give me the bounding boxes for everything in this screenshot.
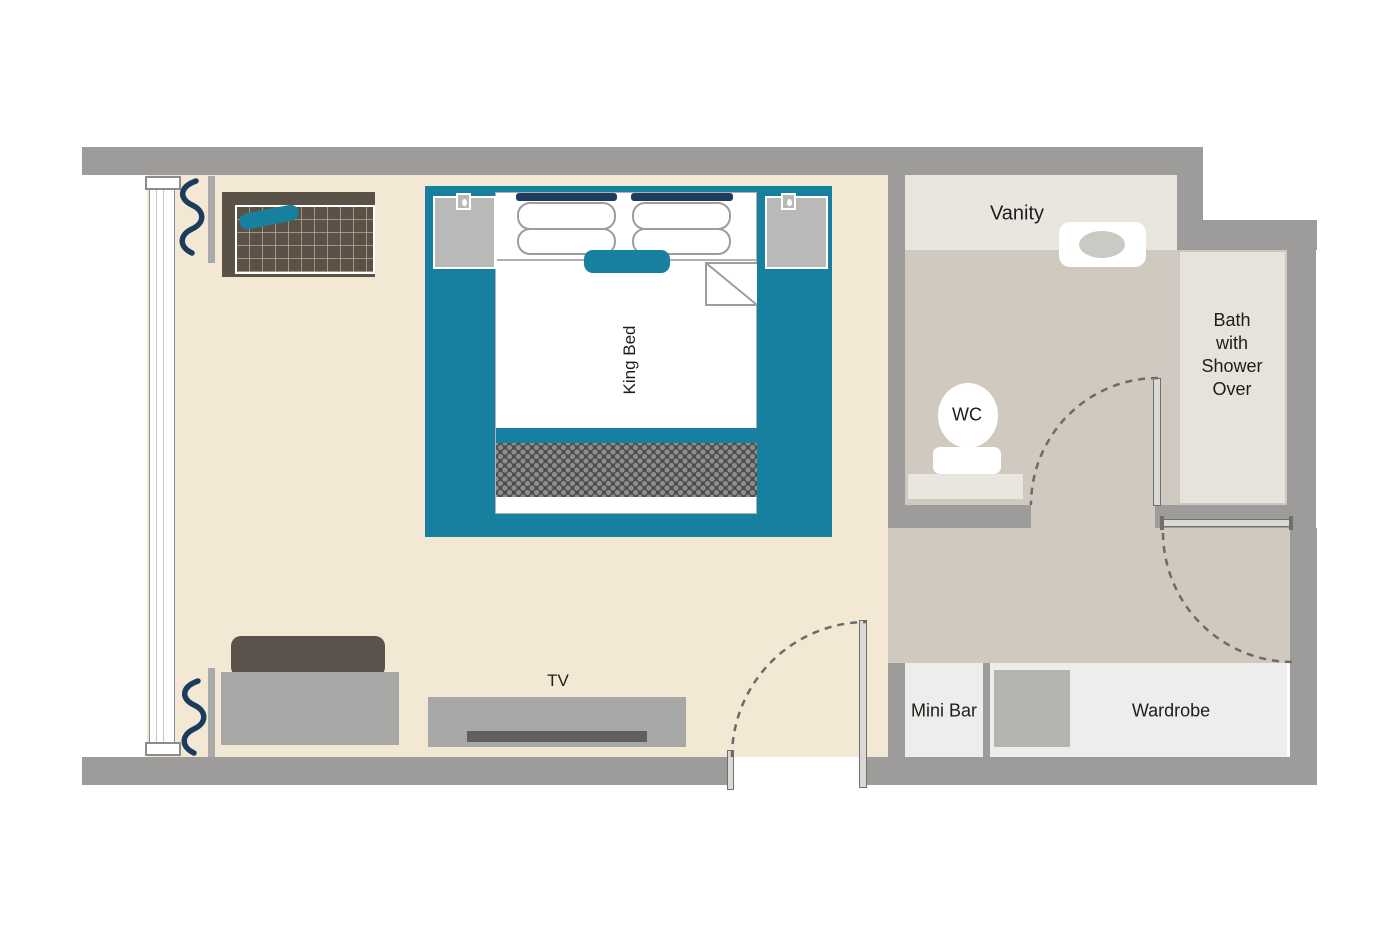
- hall-left-wall-strip: [888, 663, 905, 757]
- window-cap-bottom: [145, 742, 181, 756]
- headboard-cushion-right: [631, 193, 733, 201]
- hall-door-leaf: [1163, 519, 1293, 527]
- top-wall: [82, 147, 1203, 175]
- bath-label: Bath with Shower Over: [1201, 309, 1262, 401]
- sofa-seat: [221, 672, 399, 745]
- vanity-sink: [1059, 222, 1146, 267]
- lamp-icon: [781, 193, 796, 210]
- curtain-track-bottom: [208, 668, 215, 757]
- vanity-right-wall: [1177, 170, 1203, 225]
- mini-bar-label: Mini Bar: [911, 701, 977, 722]
- wc-shelf: [908, 474, 1023, 499]
- right-wall-upper: [1287, 248, 1316, 528]
- bed-runner-dotted: [496, 443, 757, 497]
- wc-bottom-wall: [888, 505, 1031, 528]
- wardrobe-label: Wardrobe: [1132, 701, 1210, 722]
- bottom-wall: [82, 757, 1317, 785]
- wc-label: WC: [952, 405, 982, 426]
- king-bed-label: King Bed: [620, 326, 640, 395]
- entry-door-leaf: [859, 620, 867, 788]
- pillow: [632, 202, 731, 230]
- entry-door-opening: [734, 757, 859, 785]
- window-cap-top: [145, 176, 181, 190]
- window-glazing-line: [156, 179, 157, 754]
- right-wall-lower: [1290, 528, 1317, 757]
- safe-box: [994, 670, 1070, 747]
- hall-door-cap-left: [1160, 516, 1164, 530]
- floor-plan: King Bed TV Vanity WC Bath with Shower O…: [0, 0, 1400, 933]
- wc-cistern: [933, 447, 1001, 474]
- bath-label-line: Bath: [1201, 309, 1262, 332]
- bed-runner-stripe: [496, 428, 757, 443]
- window: [149, 178, 175, 756]
- hallway-floor: [888, 528, 1293, 663]
- desk: [222, 192, 375, 277]
- bathroom-left-wall: [888, 175, 905, 528]
- tv-screen: [467, 731, 647, 742]
- bath-label-line: Shower: [1201, 355, 1262, 378]
- bathroom-door-leaf: [1153, 378, 1161, 506]
- minibar-wardrobe-divider: [983, 663, 990, 757]
- tv-console: [428, 697, 686, 747]
- tv-label: TV: [547, 671, 569, 691]
- bath-label-line: Over: [1201, 378, 1262, 401]
- sink-basin: [1079, 231, 1125, 258]
- curtain-track-top: [208, 176, 215, 263]
- hall-door-cap-right: [1289, 516, 1293, 530]
- bath-top-wall: [1177, 220, 1317, 250]
- sofa-back: [231, 636, 385, 677]
- pillow: [517, 202, 616, 230]
- headboard-cushion-left: [516, 193, 617, 201]
- bathroom-door-threshold: [1031, 505, 1155, 528]
- entry-door-jamb: [727, 750, 734, 790]
- nightstand-right: [765, 196, 828, 269]
- bed-cushion: [584, 250, 670, 273]
- lamp-icon: [456, 193, 471, 210]
- sheet-fold-corner: [705, 262, 757, 306]
- window-glazing-line: [163, 179, 164, 754]
- bath-label-line: with: [1201, 332, 1262, 355]
- vanity-label: Vanity: [990, 203, 1044, 226]
